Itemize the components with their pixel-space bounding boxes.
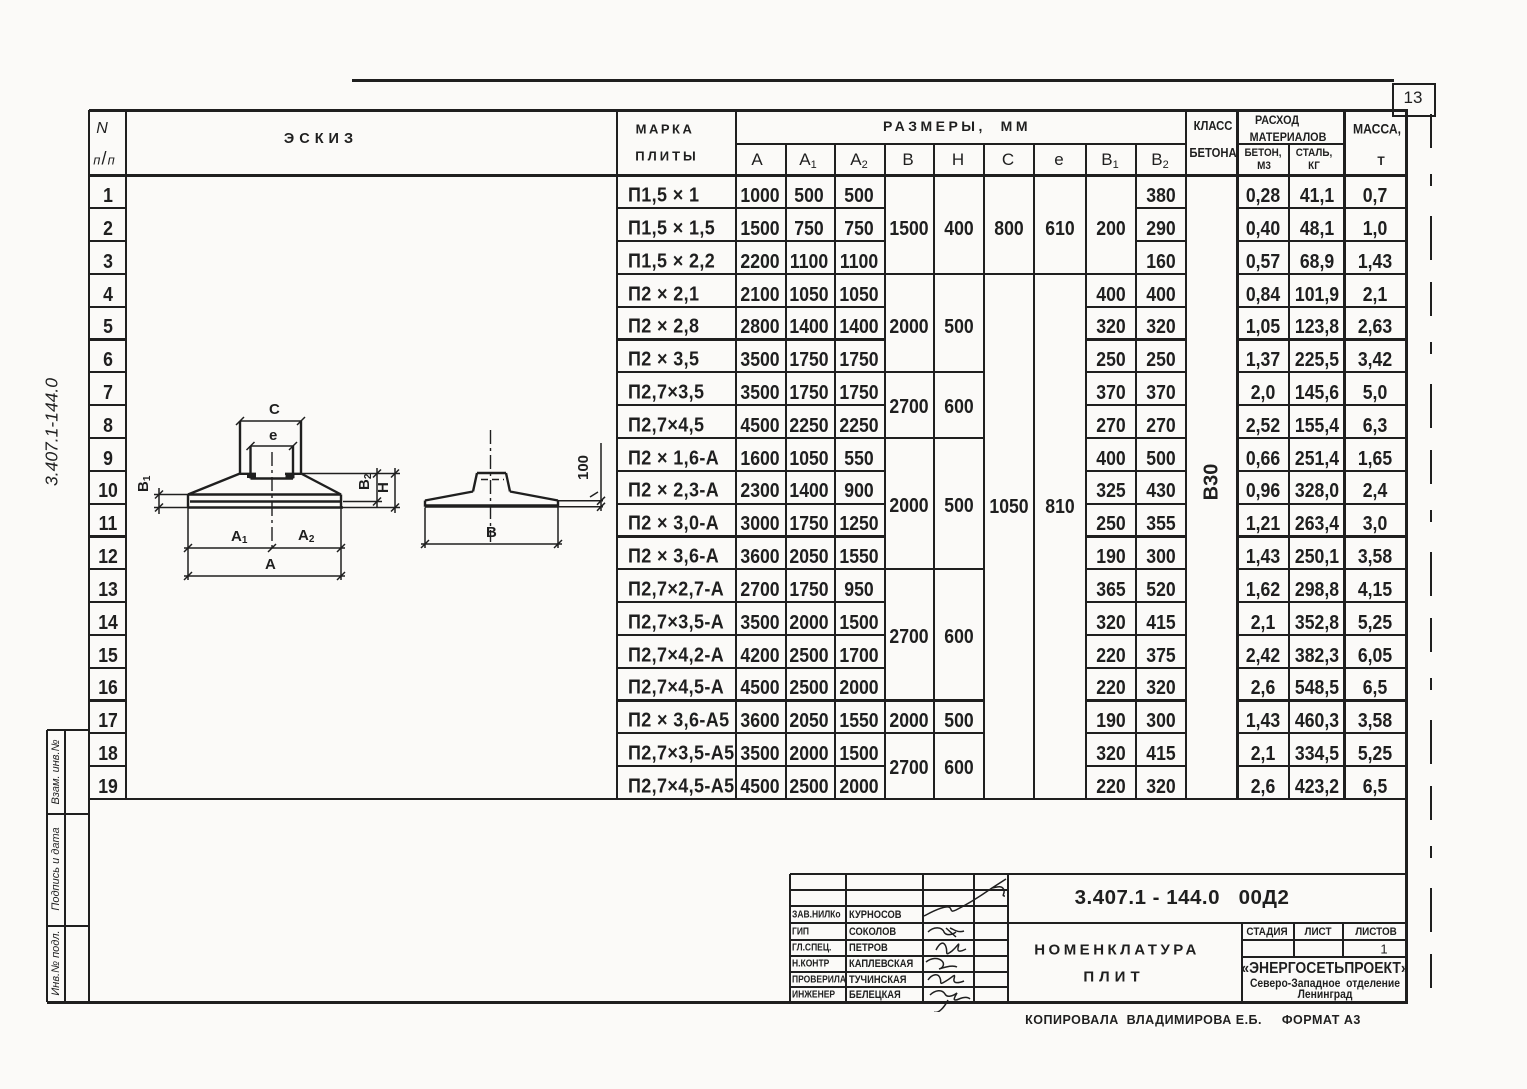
- svg-text:В: В: [486, 524, 497, 541]
- svg-text:100: 100: [575, 455, 592, 480]
- svg-text:А: А: [265, 556, 276, 573]
- svg-text:е: е: [269, 427, 277, 444]
- svg-text:С: С: [269, 401, 280, 418]
- svg-text:Н: Н: [375, 482, 392, 493]
- svg-text:В1: В1: [135, 475, 153, 492]
- svg-text:А2: А2: [298, 527, 315, 545]
- svg-text:А1: А1: [231, 528, 248, 546]
- svg-text:В2: В2: [356, 473, 374, 490]
